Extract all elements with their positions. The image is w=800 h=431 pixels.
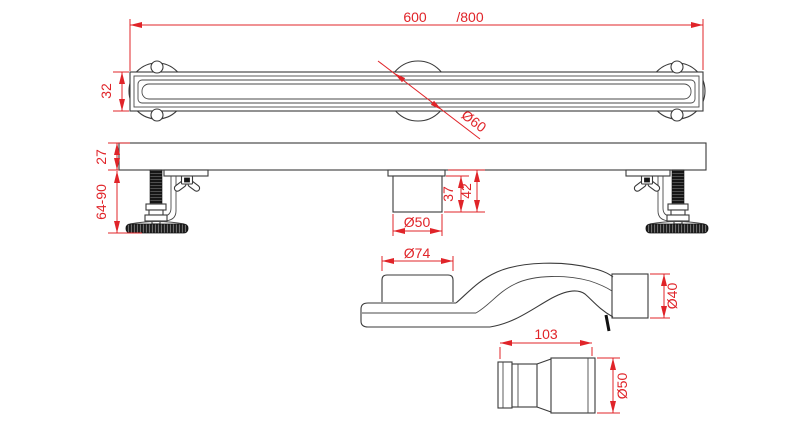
dim-length-800: /800 [456,9,483,25]
hex-nut-upper [146,204,166,210]
dim-body-height: 27 [93,149,109,165]
outlet-collar [388,170,445,176]
dim-spigot-proj: 37 [440,186,456,202]
outlet-spigot [393,176,442,212]
left-screw-hole-bottom [151,109,163,121]
hex-nut-middle [149,210,163,215]
left-screw-hole-top [151,61,163,73]
dim-channel-width: 32 [98,83,114,99]
wing-nut-bolt [185,178,190,182]
threaded-rod [150,170,162,204]
dim-spigot-total: 42 [458,183,474,199]
right-screw-hole-top [671,61,683,73]
dim-trap-inlet-dia: Ø74 [404,245,431,261]
trap-outlet-pipe [612,274,648,318]
channel-outer-rect [130,72,703,111]
dim-fitting-dia: Ø50 [614,373,630,400]
hex-nut-lower [145,215,167,221]
technical-drawing-canvas: 600 /800 32 Ø60 [0,0,800,431]
right-screw-hole-bottom [671,109,683,121]
foot-disc-knurled [126,224,188,233]
drain-body-rect [119,143,706,170]
foot-bracket-plate [164,170,208,176]
dim-spigot-dia: Ø50 [404,214,431,230]
dim-length-600: 600 [403,9,427,25]
dim-fitting-len: 103 [534,326,558,342]
dim-leg-range: 64-90 [93,184,109,220]
dim-trap-outlet-dia: Ø40 [664,283,680,310]
fitting-collar [498,362,512,408]
technical-drawing-page: 600 /800 32 Ø60 [0,0,800,431]
fitting-small-tube [512,364,537,407]
